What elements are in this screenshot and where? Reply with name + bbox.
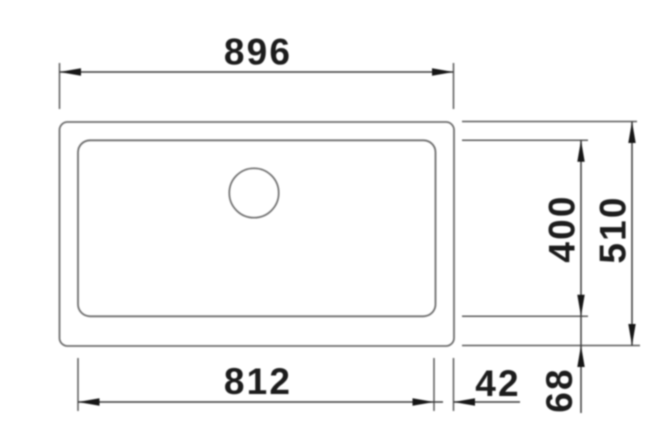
svg-text:68: 68: [539, 367, 580, 413]
svg-text:400: 400: [542, 194, 583, 262]
svg-text:896: 896: [224, 32, 292, 73]
svg-text:42: 42: [475, 363, 521, 404]
svg-text:510: 510: [593, 195, 634, 263]
svg-text:812: 812: [224, 361, 292, 402]
